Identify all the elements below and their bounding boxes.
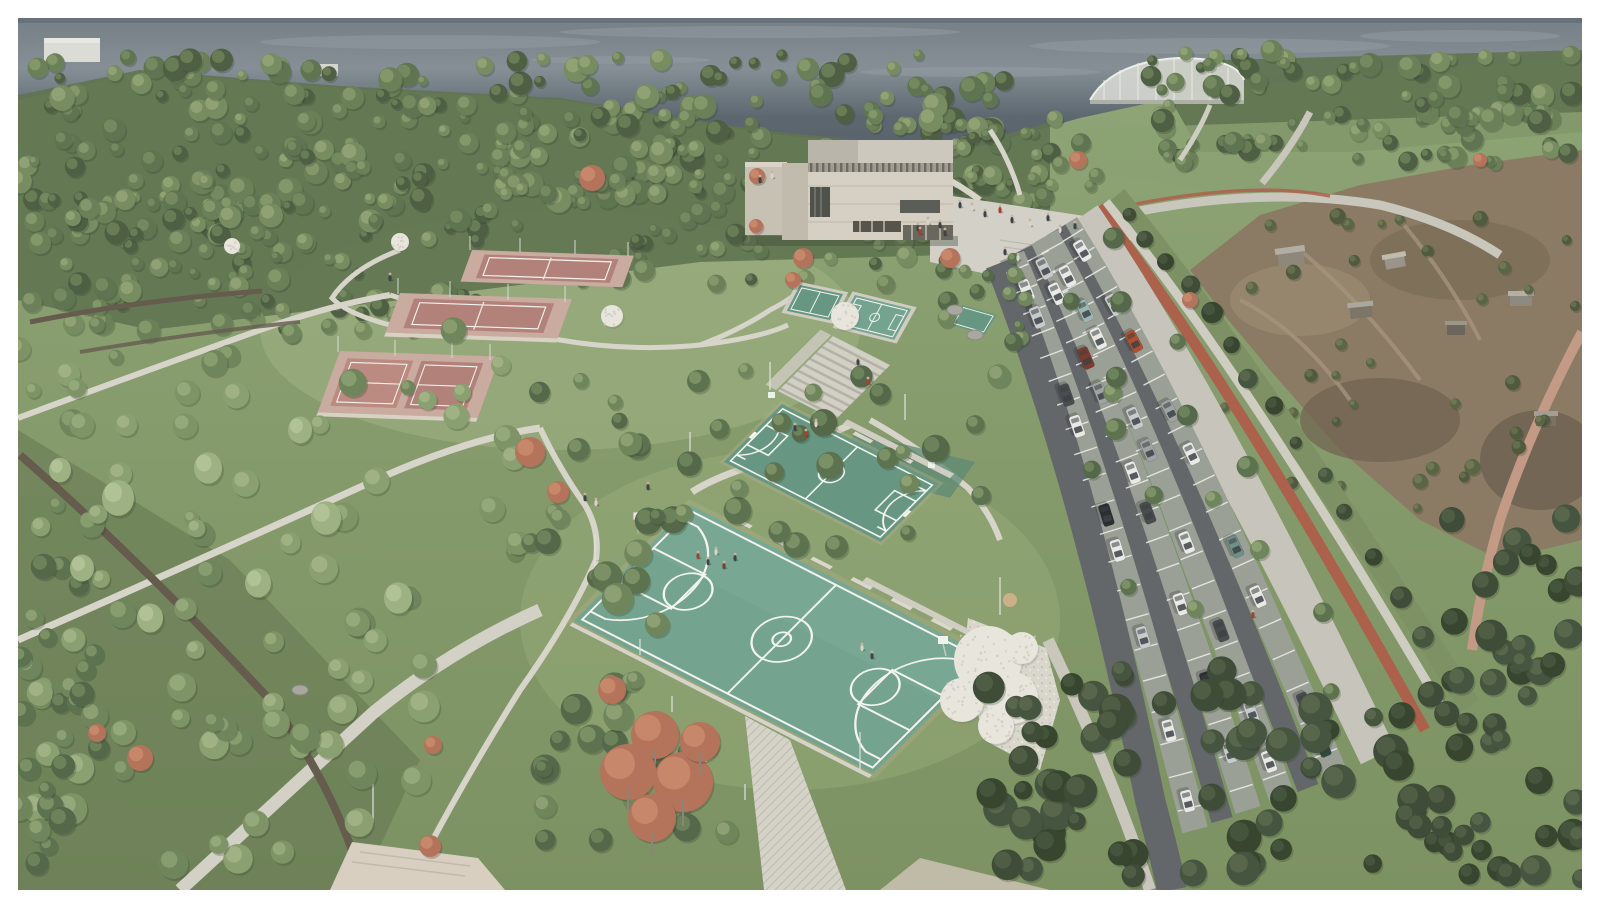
building-ribbon-window — [900, 200, 940, 213]
umbrella — [1003, 593, 1017, 607]
building-side-face — [782, 163, 808, 240]
tennis-court-1 — [460, 250, 633, 287]
aerial-park-render — [0, 0, 1600, 916]
building-upper-volume — [808, 140, 858, 164]
building-window-tall — [810, 187, 830, 217]
tennis-court-2 — [384, 293, 572, 342]
scene-canvas — [0, 0, 1600, 916]
building-roof-slats — [808, 163, 953, 172]
